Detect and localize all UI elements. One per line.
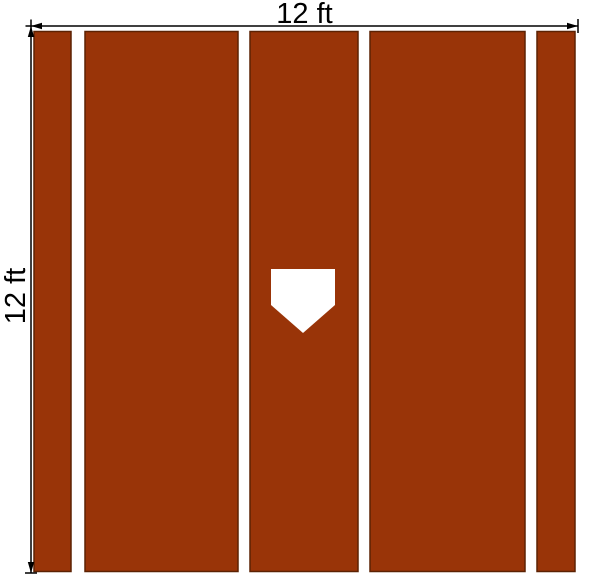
turf-stripe-1 <box>34 32 71 572</box>
field-diagram-svg <box>0 0 600 580</box>
diagram-canvas: 12 ft 12 ft <box>0 0 600 580</box>
height-dimension-label: 12 ft <box>1 261 31 331</box>
turf-stripe-5 <box>537 32 575 572</box>
width-dimension-label: 12 ft <box>31 0 578 29</box>
turf-stripe-4 <box>370 32 525 572</box>
turf-stripe-2 <box>85 32 238 572</box>
